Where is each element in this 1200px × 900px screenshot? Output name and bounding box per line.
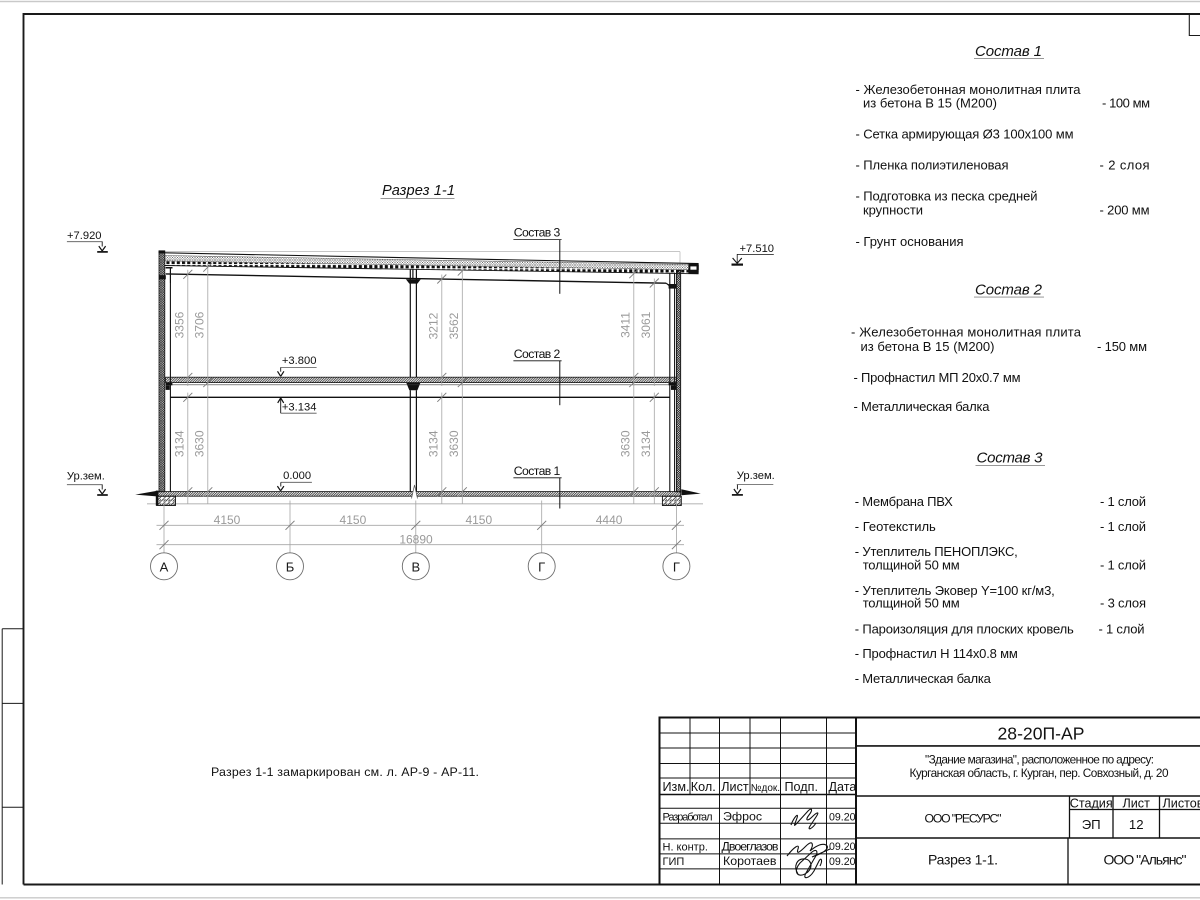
svg-text:Г: Г [538, 559, 545, 574]
svg-text:- Геотекстиль: - Геотекстиль [855, 519, 936, 534]
svg-text:3630: 3630 [447, 430, 461, 457]
svg-text:3061: 3061 [639, 311, 653, 338]
svg-text:- Пленка полиэтиленовая: - Пленка полиэтиленовая [856, 157, 1009, 172]
svg-text:3212: 3212 [427, 312, 441, 339]
svg-text:3356: 3356 [173, 311, 187, 338]
svg-text:3562: 3562 [447, 312, 461, 339]
svg-text:- Металлическая балка: - Металлическая балка [854, 399, 991, 414]
svg-text:Н. контр.: Н. контр. [663, 842, 708, 854]
svg-text:- Пароизоляция для плоских кро: - Пароизоляция для плоских кровель [855, 621, 1074, 636]
svg-text:"Здание магазина", расположенн: "Здание магазина", расположенное по адре… [925, 753, 1154, 767]
svg-text:- Профнастил МП 20х0.7 мм: - Профнастил МП 20х0.7 мм [854, 370, 1021, 385]
svg-text:из бетона В 15 (М200): из бетона В 15 (М200) [863, 95, 997, 110]
svg-text:12: 12 [1129, 817, 1144, 832]
svg-text:- Железобетонная монолитная п: - Железобетонная монолитная плита [851, 325, 1082, 340]
svg-text:Разработал: Разработал [663, 811, 713, 823]
svg-text:- Профнастил Н 114х0.8 мм: - Профнастил Н 114х0.8 мм [855, 646, 1018, 661]
svg-text:Состав 2: Состав 2 [975, 281, 1043, 298]
svg-text:- 100 мм: - 100 мм [1102, 95, 1150, 110]
svg-text:Состав 3: Состав 3 [977, 449, 1044, 466]
svg-text:Листов: Листов [1163, 796, 1200, 810]
svg-text:3706: 3706 [193, 311, 207, 338]
svg-text:Коротаев: Коротаев [723, 854, 777, 868]
svg-text:Б: Б [286, 559, 295, 574]
svg-text:Состав 1: Состав 1 [975, 43, 1042, 60]
svg-text:0.000: 0.000 [283, 470, 311, 482]
svg-text:Стадия: Стадия [1070, 796, 1113, 810]
svg-text:3134: 3134 [639, 430, 653, 457]
svg-text:Дата: Дата [829, 780, 857, 794]
svg-text:+3.800: +3.800 [282, 355, 317, 367]
svg-text:Состав 3: Состав 3 [514, 226, 561, 240]
svg-text:№док.: №док. [751, 783, 780, 794]
svg-text:4150: 4150 [465, 513, 492, 527]
svg-text:толщиной 50 мм: толщиной 50 мм [863, 558, 960, 573]
svg-text:- 1 слой: - 1 слой [1100, 519, 1146, 534]
svg-text:- 1 слой: - 1 слой [1100, 558, 1146, 573]
svg-text:3134: 3134 [427, 430, 441, 457]
svg-text:+3.134: +3.134 [282, 401, 317, 413]
svg-text:- 1 слой: - 1 слой [1100, 494, 1146, 509]
svg-text:4150: 4150 [340, 513, 367, 527]
svg-text:3411: 3411 [619, 312, 633, 338]
svg-text:крупности: крупности [863, 203, 923, 218]
svg-text:Эфрос: Эфрос [723, 809, 762, 823]
svg-text:Изм.: Изм. [663, 780, 690, 794]
svg-text:Разрез 1-1 замаркирован см. л.: Разрез 1-1 замаркирован см. л. АР-9 - АР… [211, 765, 479, 779]
svg-text:28-20П-АР: 28-20П-АР [998, 724, 1085, 744]
svg-text:- 150 мм: - 150 мм [1097, 339, 1147, 354]
svg-text:3134: 3134 [173, 430, 187, 457]
svg-text:09.20: 09.20 [829, 841, 856, 853]
svg-text:Ур.зем.: Ур.зем. [737, 470, 775, 482]
svg-text:из бетона В 15 (М200): из бетона В 15 (М200) [861, 339, 995, 354]
svg-text:Подп.: Подп. [785, 780, 818, 794]
svg-text:А: А [160, 559, 169, 574]
svg-text:Кол.: Кол. [691, 780, 716, 794]
svg-text:Ур.зем.: Ур.зем. [67, 471, 105, 483]
svg-text:ГИП: ГИП [663, 856, 685, 868]
svg-text:- Мембрана ПВХ: - Мембрана ПВХ [855, 494, 953, 509]
svg-text:Двоеглазов: Двоеглазов [722, 840, 779, 854]
svg-text:- 1 слой: - 1 слой [1099, 621, 1145, 636]
svg-text:09.20: 09.20 [829, 856, 856, 868]
svg-text:16890: 16890 [399, 532, 433, 546]
svg-text:Разрез 1-1: Разрез 1-1 [382, 183, 455, 199]
svg-text:- 3 слоя: - 3 слоя [1100, 596, 1146, 611]
svg-text:Курганская область, г. Курган,: Курганская область, г. Курган, пер. Совх… [910, 766, 1169, 780]
svg-text:+7.920: +7.920 [67, 230, 102, 242]
svg-text:Лист: Лист [1123, 796, 1151, 810]
svg-text:- Подготовка из песка средней: - Подготовка из песка средней [856, 188, 1038, 203]
svg-text:3630: 3630 [619, 430, 633, 457]
svg-text:3630: 3630 [193, 430, 207, 457]
svg-text:Состав 1: Состав 1 [514, 464, 561, 478]
svg-text:ООО "РЕСУРС": ООО "РЕСУРС" [925, 811, 1002, 825]
svg-text:- Грунт основания: - Грунт основания [856, 234, 964, 249]
svg-text:- 2 слоя: - 2 слоя [1100, 157, 1150, 172]
svg-text:Разрез 1-1.: Разрез 1-1. [928, 852, 998, 868]
svg-text:Состав 2: Состав 2 [514, 347, 561, 361]
svg-text:Г: Г [673, 559, 680, 574]
svg-text:ЭП: ЭП [1082, 817, 1101, 832]
svg-text:- Металлическая балка: - Металлическая балка [855, 671, 992, 686]
svg-text:В: В [411, 559, 420, 574]
svg-text:09.20: 09.20 [829, 811, 856, 823]
svg-text:ООО "Альянс": ООО "Альянс" [1104, 852, 1187, 868]
svg-text:4440: 4440 [596, 513, 623, 527]
svg-text:- 200 мм: - 200 мм [1100, 203, 1150, 218]
svg-text:Лист: Лист [721, 780, 749, 794]
svg-text:толщиной 50 мм: толщиной 50 мм [863, 596, 960, 611]
svg-text:4150: 4150 [214, 513, 241, 527]
svg-text:- Сетка армирующая Ø3 100х100: - Сетка армирующая Ø3 100х100 мм [856, 126, 1074, 141]
svg-text:+7.510: +7.510 [740, 243, 775, 255]
